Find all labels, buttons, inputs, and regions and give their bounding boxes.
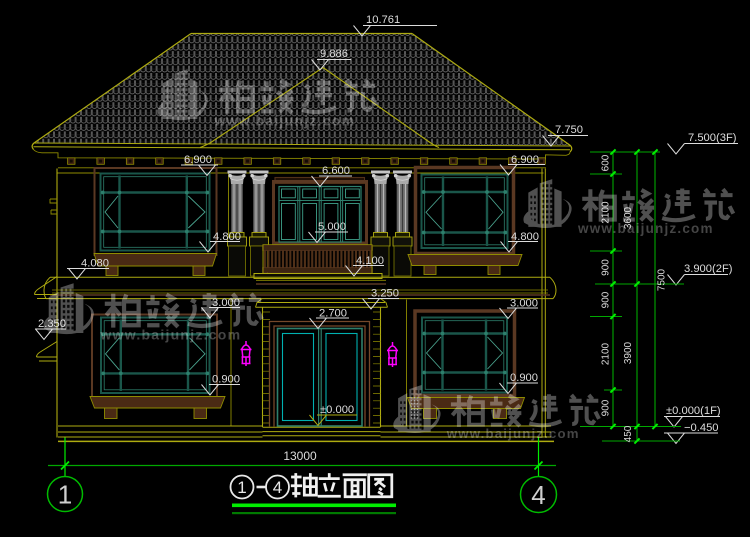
- svg-text:4: 4: [273, 478, 282, 497]
- svg-text:7500: 7500: [657, 268, 668, 291]
- svg-text:4: 4: [531, 480, 545, 510]
- svg-text:−0.450: −0.450: [684, 422, 719, 434]
- svg-text:±0.000: ±0.000: [320, 404, 354, 416]
- svg-text:600: 600: [601, 154, 612, 171]
- svg-text:6.900: 6.900: [184, 154, 212, 166]
- svg-text:6.600: 6.600: [322, 165, 350, 177]
- svg-text:7.750: 7.750: [555, 124, 583, 136]
- svg-text:0.900: 0.900: [212, 374, 240, 386]
- svg-text:9.886: 9.886: [320, 48, 348, 60]
- svg-text:3.250: 3.250: [371, 288, 399, 300]
- svg-text:7.500(3F): 7.500(3F): [688, 132, 737, 144]
- svg-text:2100: 2100: [601, 342, 612, 365]
- svg-text:5.000: 5.000: [318, 221, 346, 233]
- svg-text:900: 900: [601, 259, 612, 276]
- svg-text:0.900: 0.900: [510, 372, 538, 384]
- svg-text:450: 450: [623, 425, 634, 442]
- svg-text:3.900(2F): 3.900(2F): [684, 263, 733, 275]
- svg-text:4.080: 4.080: [81, 258, 109, 270]
- svg-text:3900: 3900: [623, 341, 634, 364]
- svg-text:±0.000(1F): ±0.000(1F): [666, 405, 721, 417]
- svg-text:1: 1: [58, 480, 72, 510]
- svg-text:900: 900: [601, 291, 612, 308]
- svg-text:900: 900: [601, 399, 612, 416]
- svg-text:10.761: 10.761: [366, 14, 400, 26]
- svg-text:13000: 13000: [283, 449, 317, 463]
- svg-text:1: 1: [237, 478, 246, 497]
